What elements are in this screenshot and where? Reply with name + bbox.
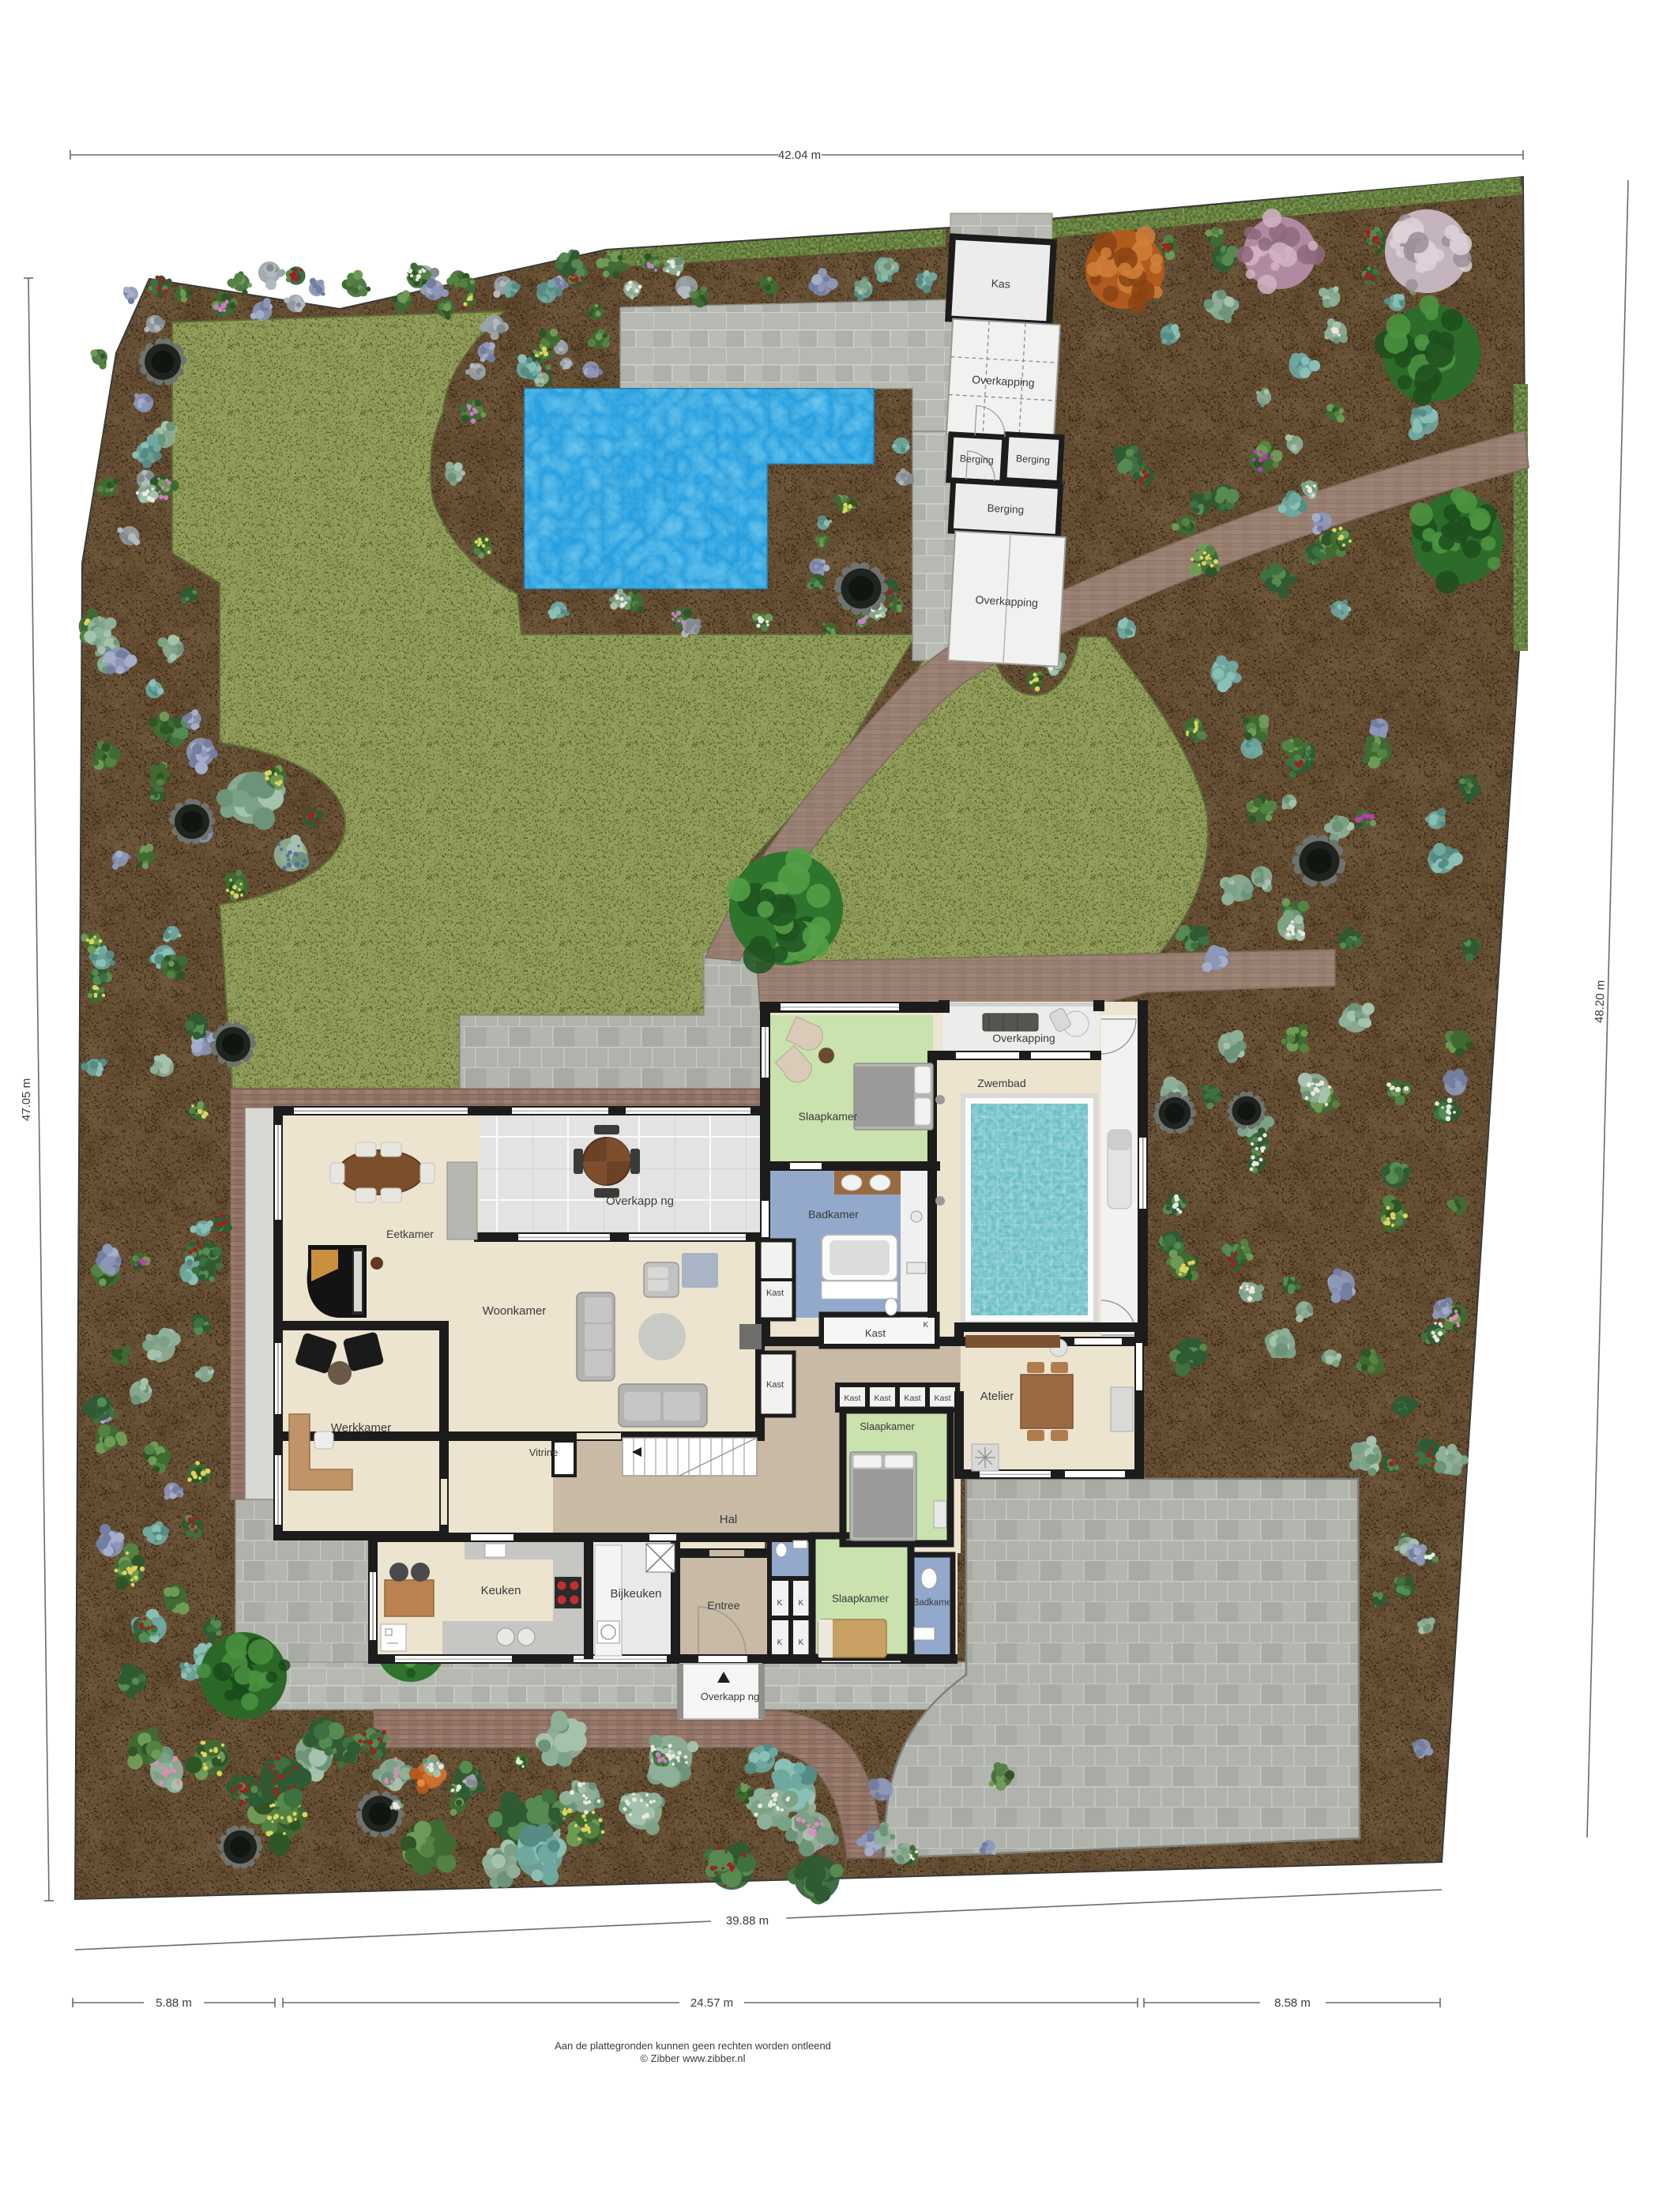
svg-text:42.04 m: 42.04 m xyxy=(778,149,821,162)
svg-text:48.20 m: 48.20 m xyxy=(1593,980,1608,1023)
svg-text:8.58 m: 8.58 m xyxy=(1274,1996,1311,2010)
svg-text:47.05 m: 47.05 m xyxy=(20,1078,33,1121)
svg-text:39.88 m: 39.88 m xyxy=(726,1914,769,1928)
svg-text:24.57 m: 24.57 m xyxy=(690,1996,733,2010)
svg-text:5.88 m: 5.88 m xyxy=(156,1996,192,2010)
